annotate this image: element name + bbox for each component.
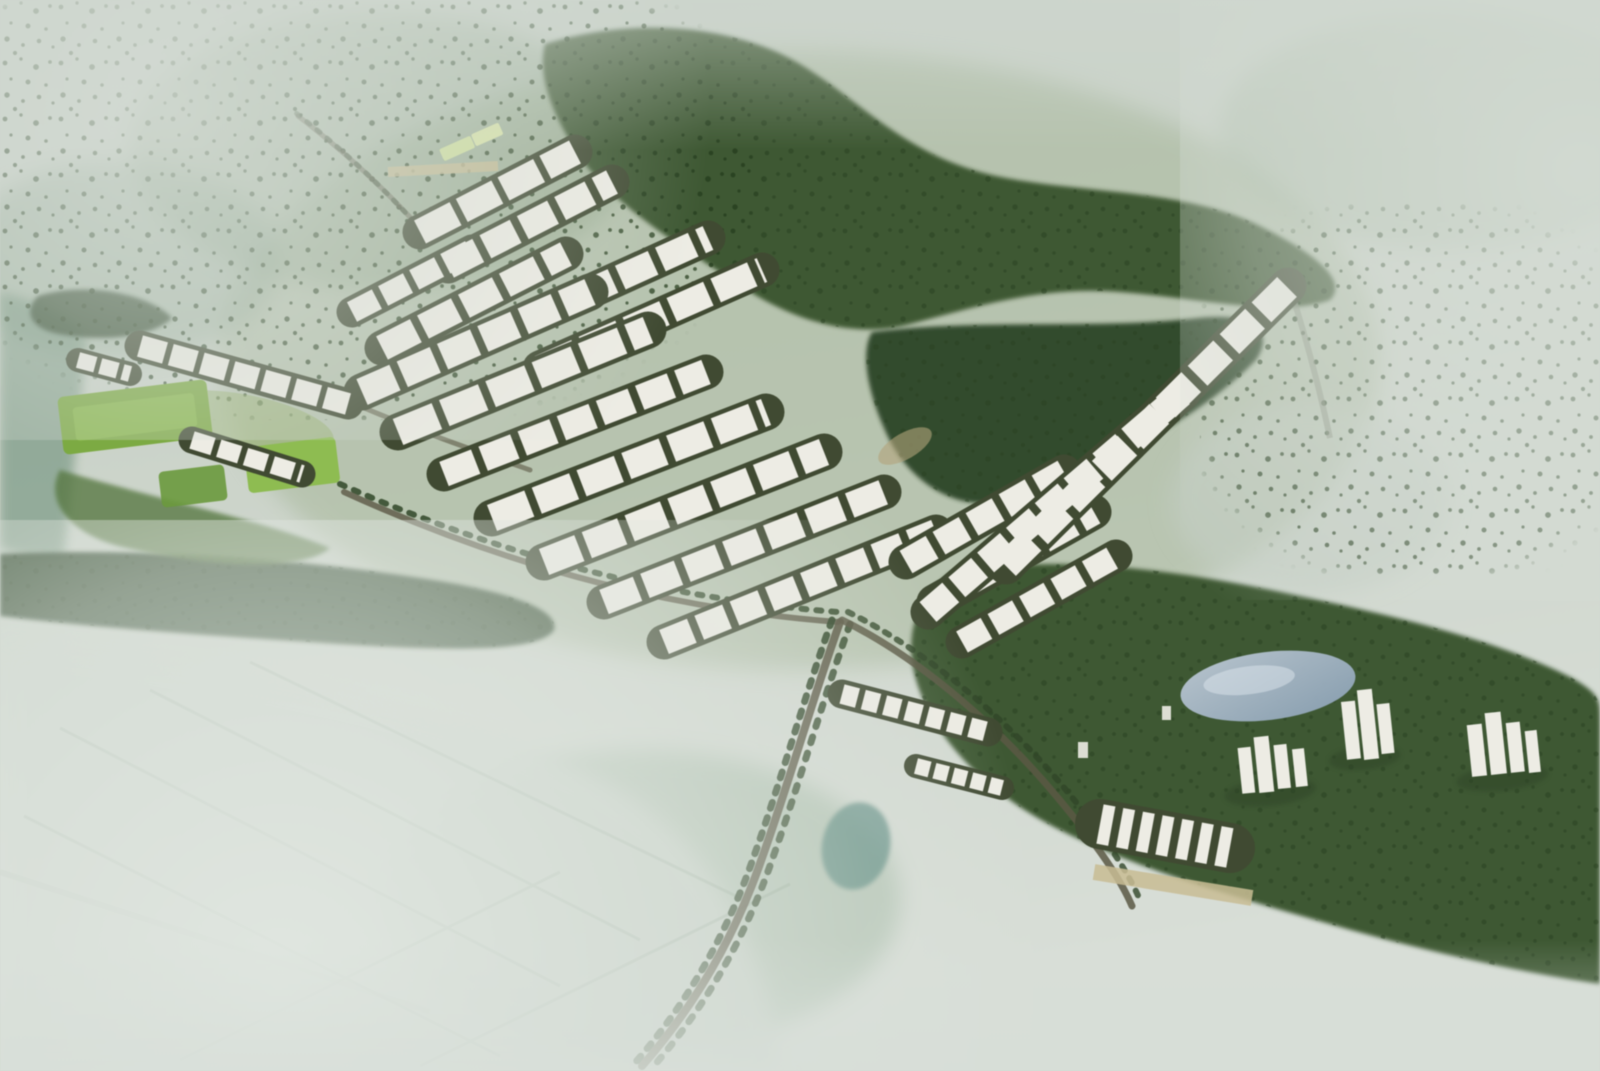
fog-overlay-bottom xyxy=(0,940,1600,1071)
aerial-rendering xyxy=(0,0,1600,1071)
masterplan-scene xyxy=(0,0,1600,1071)
tower-block xyxy=(1078,742,1088,758)
fog-overlay-top xyxy=(0,0,1600,150)
tower-block xyxy=(1162,706,1171,720)
